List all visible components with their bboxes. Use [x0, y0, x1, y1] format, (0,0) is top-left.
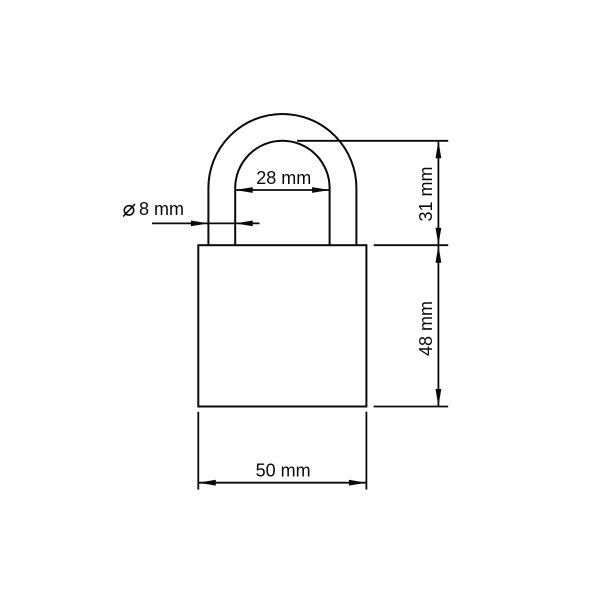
svg-text:31 mm: 31 mm	[416, 166, 436, 221]
svg-text:48 mm: 48 mm	[416, 301, 436, 356]
svg-text:28 mm: 28 mm	[256, 168, 311, 188]
svg-text:50 mm: 50 mm	[256, 460, 311, 480]
svg-text:8 mm: 8 mm	[139, 199, 184, 219]
